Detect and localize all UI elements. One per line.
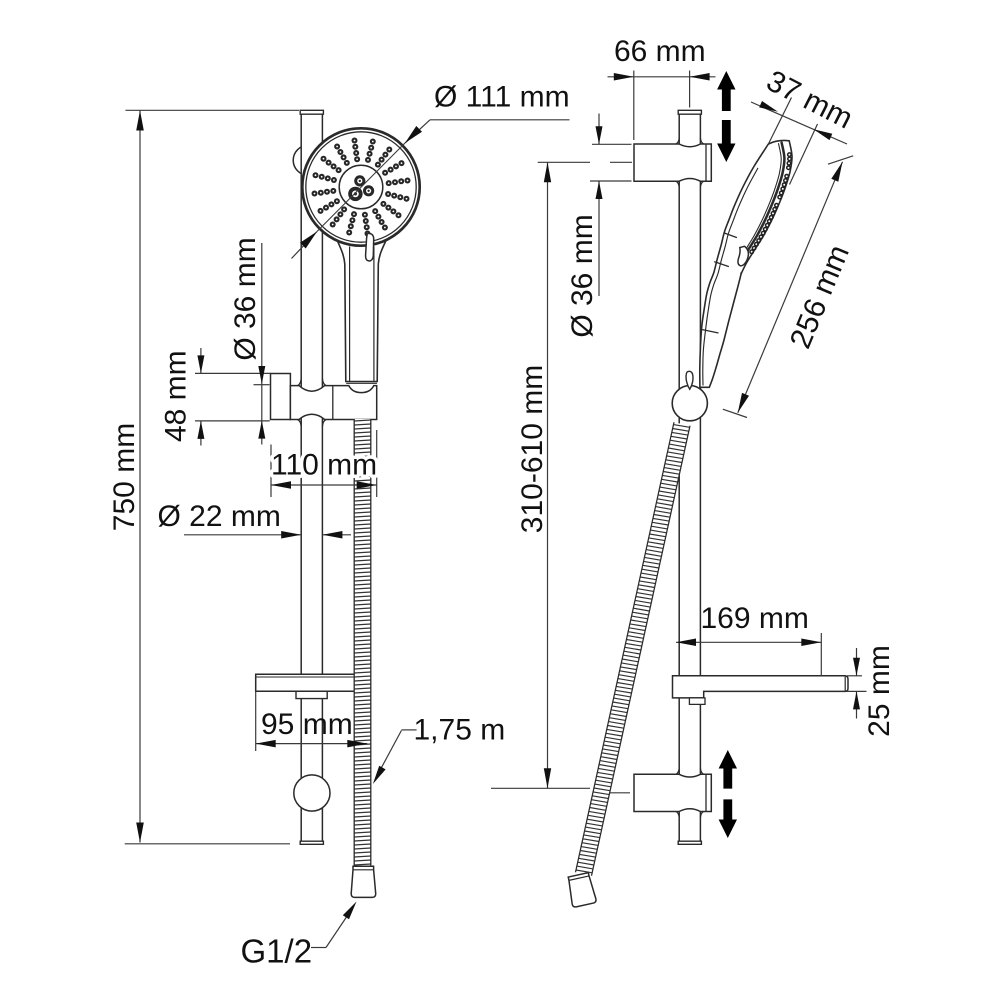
svg-text:110 mm: 110 mm: [271, 449, 377, 482]
svg-text:25 mm: 25 mm: [863, 645, 896, 737]
svg-text:Ø 22 mm: Ø 22 mm: [158, 500, 281, 533]
svg-text:48 mm: 48 mm: [160, 350, 193, 442]
svg-text:169 mm: 169 mm: [701, 602, 809, 635]
svg-text:66 mm: 66 mm: [614, 35, 706, 68]
svg-text:95 mm: 95 mm: [261, 708, 353, 741]
svg-text:750 mm: 750 mm: [108, 423, 141, 531]
svg-text:310-610 mm: 310-610 mm: [516, 365, 549, 533]
svg-text:G1/2: G1/2: [241, 933, 313, 970]
svg-text:Ø 36 mm: Ø 36 mm: [229, 237, 262, 360]
svg-text:Ø 111 mm: Ø 111 mm: [434, 81, 570, 114]
svg-text:Ø 36 mm: Ø 36 mm: [566, 214, 599, 337]
svg-text:1,75 m: 1,75 m: [414, 713, 506, 746]
